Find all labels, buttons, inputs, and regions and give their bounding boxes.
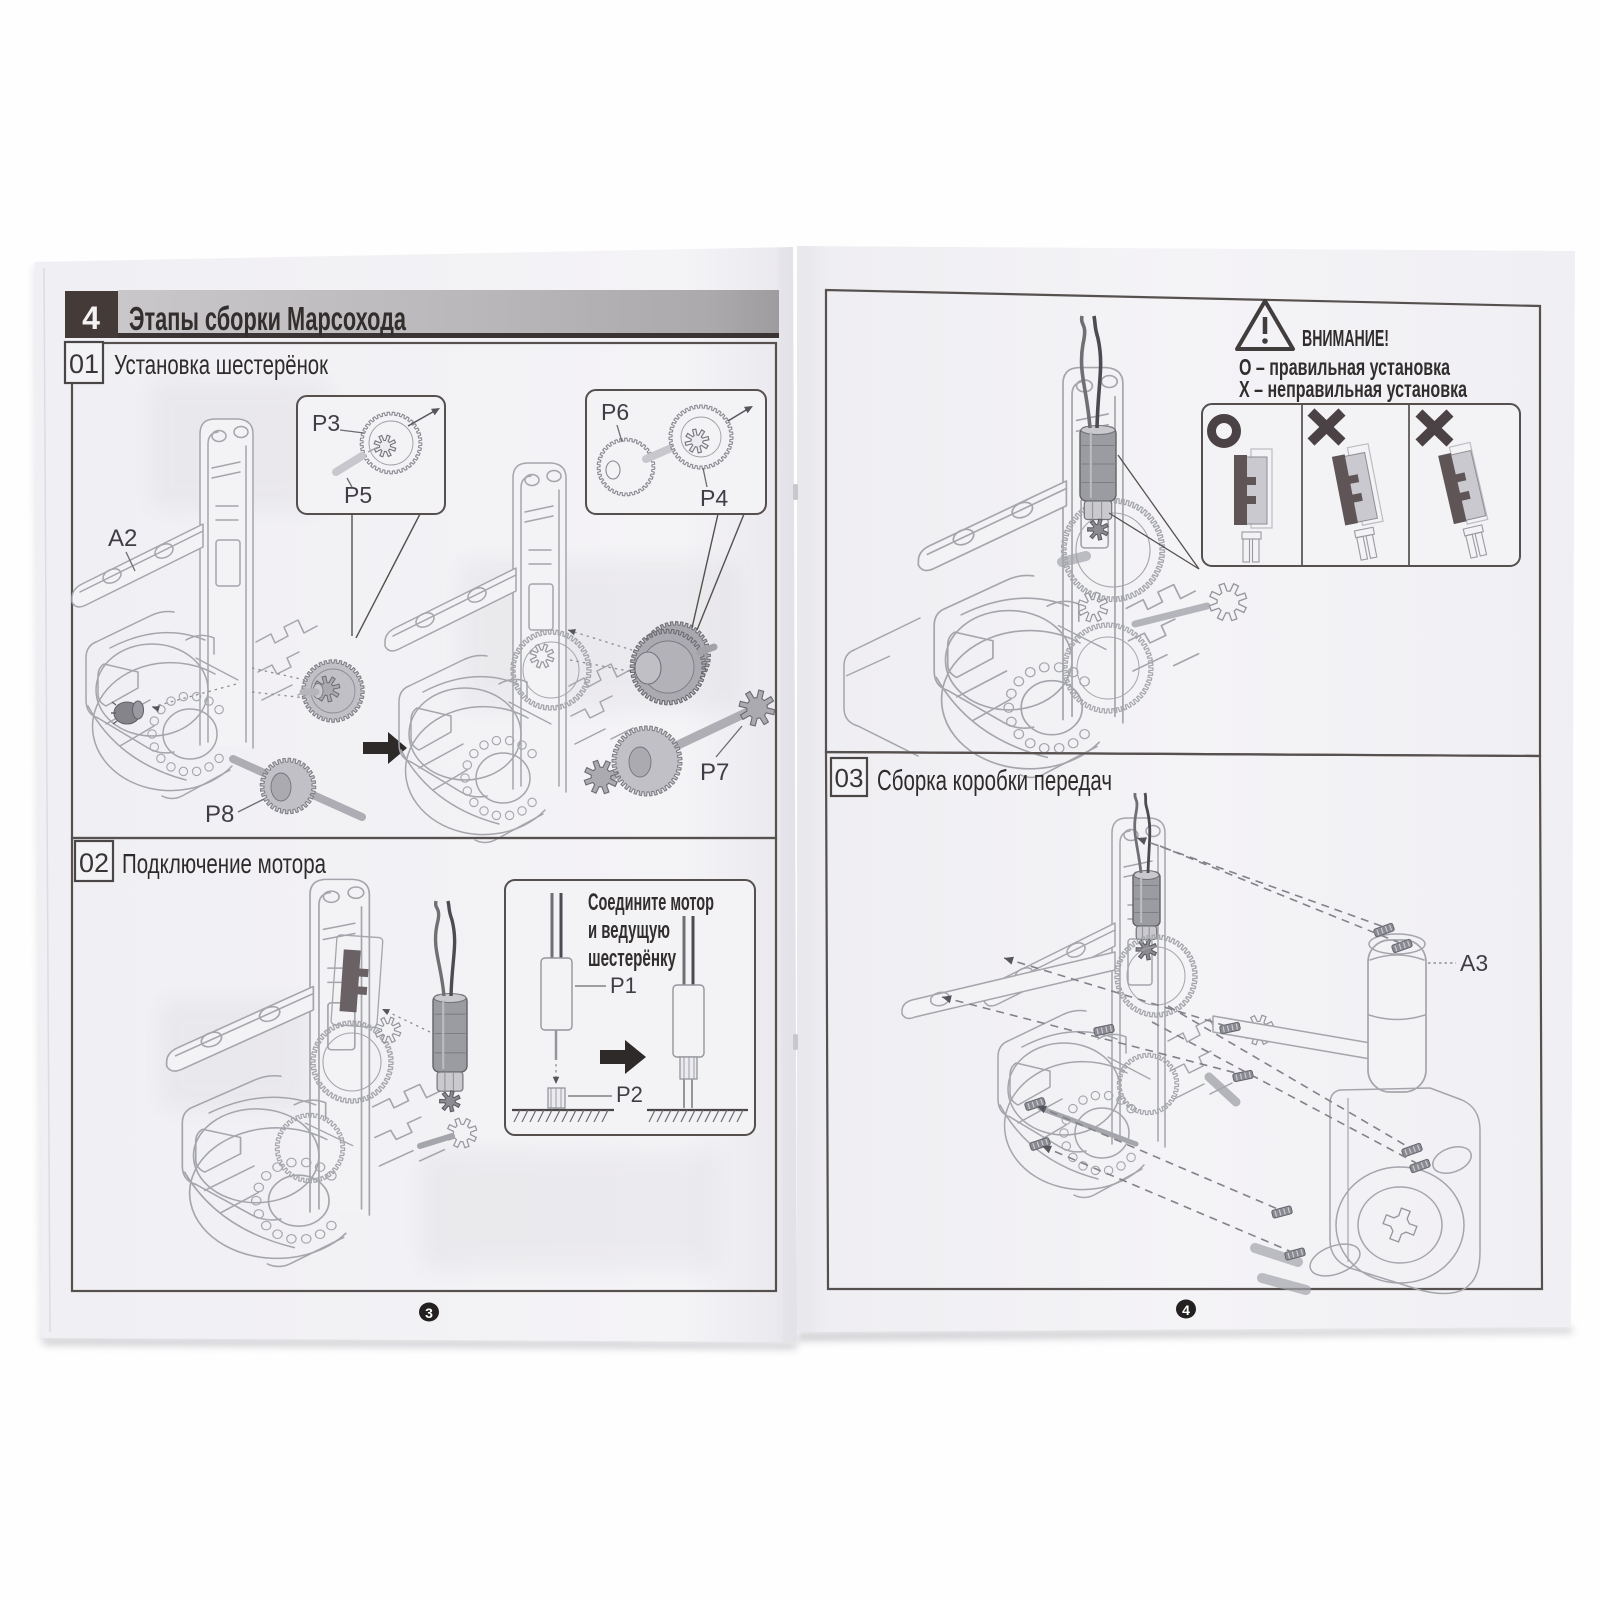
svg-text:Сборка коробки передач: Сборка коробки передач <box>877 765 1112 797</box>
svg-text:Х – неправильная установка: Х – неправильная установка <box>1239 376 1467 402</box>
svg-text:P8: P8 <box>205 801 234 828</box>
svg-text:Установка шестерёнок: Установка шестерёнок <box>114 349 329 380</box>
svg-text:и ведущую: и ведущую <box>588 917 670 944</box>
svg-text:Подключение мотора: Подключение мотора <box>122 848 326 879</box>
svg-text:A3: A3 <box>1460 950 1488 976</box>
svg-text:P1: P1 <box>610 973 637 998</box>
svg-text:P3: P3 <box>312 410 340 436</box>
svg-text:A2: A2 <box>108 525 137 552</box>
svg-text:Этапы сборки Марсохода: Этапы сборки Марсохода <box>129 300 406 337</box>
svg-text:02: 02 <box>79 848 109 878</box>
svg-text:4: 4 <box>1182 1302 1190 1318</box>
svg-text:03: 03 <box>835 763 864 793</box>
svg-text:P5: P5 <box>344 482 372 508</box>
svg-text:3: 3 <box>425 1305 433 1321</box>
svg-text:01: 01 <box>69 349 99 379</box>
svg-text:P7: P7 <box>700 759 729 786</box>
svg-text:4: 4 <box>82 300 100 336</box>
svg-text:P6: P6 <box>601 399 629 425</box>
svg-text:P4: P4 <box>700 485 728 511</box>
svg-text:Соедините мотор: Соедините мотор <box>588 889 714 916</box>
svg-text:ВНИМАНИЕ!: ВНИМАНИЕ! <box>1302 325 1389 351</box>
svg-text:шестерёнку: шестерёнку <box>588 945 676 972</box>
svg-text:P2: P2 <box>616 1082 643 1107</box>
